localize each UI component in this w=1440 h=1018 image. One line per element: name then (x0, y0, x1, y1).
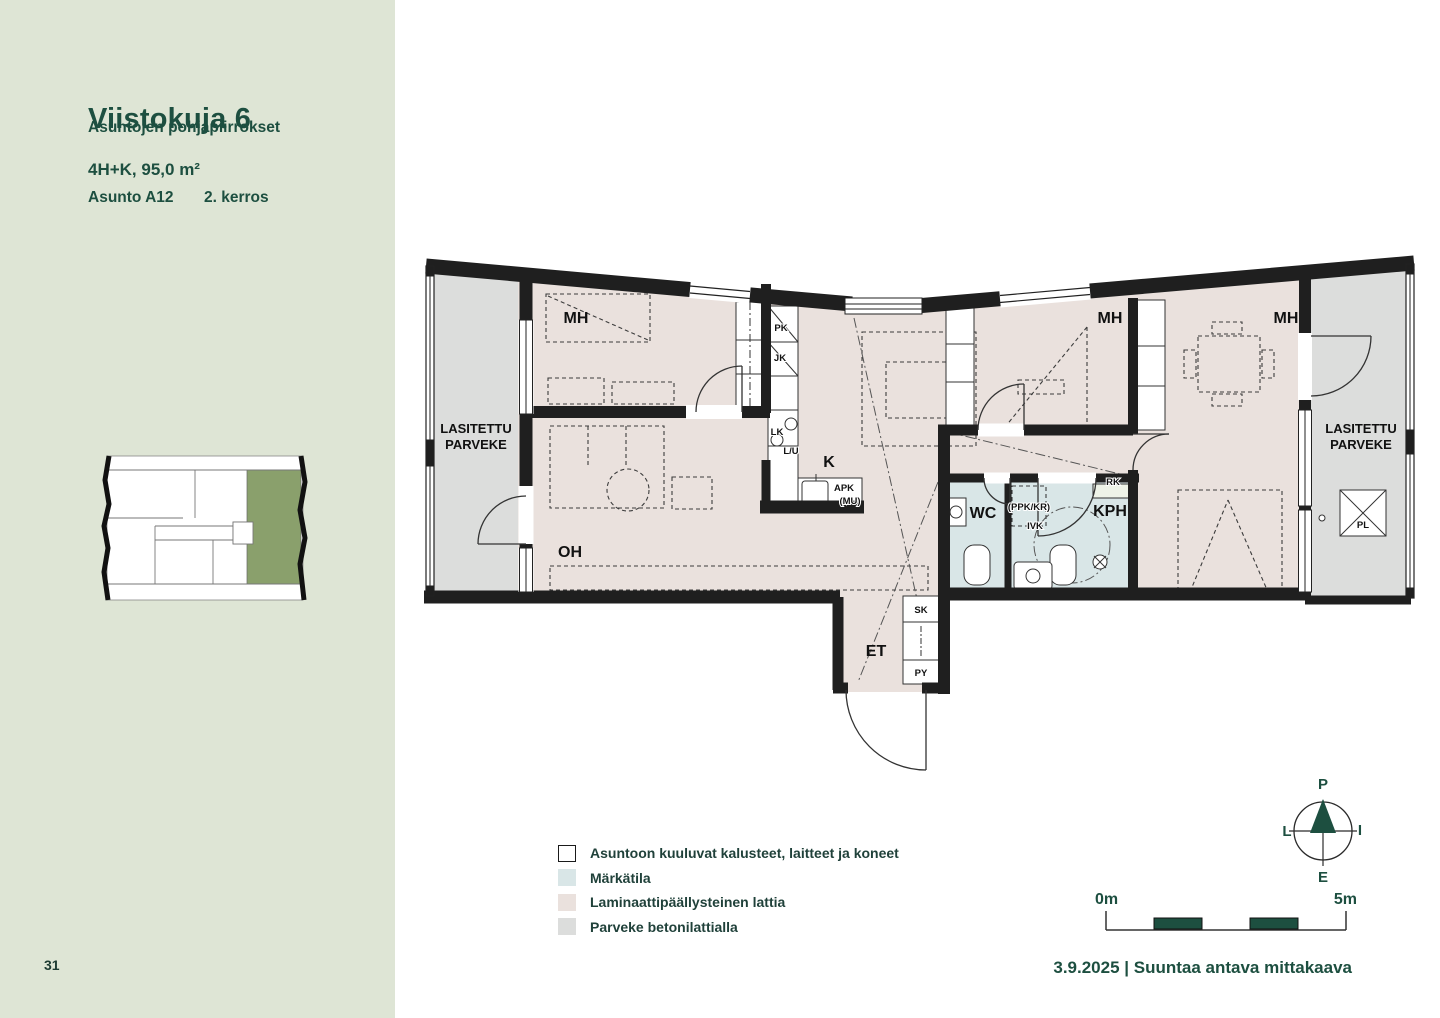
fixture-label-pl: PL (1357, 520, 1369, 531)
balcony-right-label-2: PARVEKE (1330, 437, 1392, 452)
legend-swatch-laminate (558, 894, 576, 911)
balcony-left-label-1: LASITETTU (440, 421, 512, 436)
legend-item-wet-room: Märkätila (558, 866, 899, 891)
room-label-et: ET (866, 643, 887, 660)
date-note: 3.9.2025 | Suuntaa antava mittakaava (1053, 958, 1352, 978)
page-subtitle: Asuntojen pohjapiirrokset (88, 119, 280, 137)
apartment-floor: 2. kerros (204, 189, 269, 206)
sidebar: Viistokuja 6 Asuntojen pohjapiirrokset 4… (0, 0, 395, 1018)
legend-label: Laminaattipäällysteinen lattia (590, 894, 785, 910)
legend-item-balcony: Parveke betonilattialla (558, 915, 899, 940)
compass-south-label: E (1318, 869, 1328, 886)
page-number: 31 (44, 957, 60, 973)
room-label-k: K (823, 454, 835, 471)
legend-swatch-balcony (558, 918, 576, 935)
fixture-label-lu: L/U (783, 446, 798, 457)
compass-rose: P L I E (1283, 776, 1363, 886)
room-label-mh2: MH (1098, 310, 1123, 327)
balcony-left-label-2: PARVEKE (445, 437, 507, 452)
fixture-label-jk: JK (774, 353, 786, 364)
room-label-kph: KPH (1093, 503, 1127, 520)
compass-north-label: P (1318, 776, 1328, 793)
fixture-label-mu: (MU) (839, 496, 860, 507)
legend-label: Parveke betonilattialla (590, 919, 738, 935)
scale-bar-graphic (1095, 891, 1357, 936)
scale-start-label: 0m (1095, 891, 1118, 909)
fixture-label-pk: PK (774, 323, 787, 334)
legend-swatch-wet-room (558, 869, 576, 886)
fixture-label-lk: LK (771, 427, 784, 438)
fixture-label-ppk-kr: (PPK/KR) (1008, 502, 1050, 513)
legend-swatch-furniture (558, 845, 576, 862)
compass-east-label: I (1358, 822, 1362, 839)
legend: Asuntoon kuuluvat kalusteet, laitteet ja… (558, 841, 899, 939)
fixture-label-py: PY (915, 668, 928, 679)
legend-item-laminate: Laminaattipäällysteinen lattia (558, 890, 899, 915)
room-label-wc: WC (970, 505, 997, 522)
compass-west-label: L (1283, 823, 1292, 840)
fixture-label-apk: APK (834, 483, 854, 494)
scale-end-label: 5m (1334, 891, 1357, 909)
apartment-info: Asunto A122. kerros (88, 189, 269, 207)
fixture-label-rk: RK (1106, 477, 1120, 488)
room-label-mh3: MH (1274, 310, 1299, 327)
balcony-right-label-1: LASITETTU (1325, 421, 1397, 436)
apartment-type: 4H+K, 95,0 m² (88, 160, 200, 180)
legend-label: Asuntoon kuuluvat kalusteet, laitteet ja… (590, 845, 899, 861)
apartment-id: Asunto A12 (88, 189, 204, 207)
scale-bar: 0m 5m (1095, 891, 1357, 936)
room-label-mh1: MH (564, 310, 589, 327)
legend-label: Märkätila (590, 870, 651, 886)
fixture-label-sk: SK (914, 605, 927, 616)
key-plan (95, 448, 317, 608)
fixture-label-ivk: IVK (1027, 521, 1043, 532)
document-page: Viistokuja 6 Asuntojen pohjapiirrokset 4… (0, 0, 1440, 1018)
legend-item-furniture: Asuntoon kuuluvat kalusteet, laitteet ja… (558, 841, 899, 866)
room-label-oh: OH (558, 544, 582, 561)
